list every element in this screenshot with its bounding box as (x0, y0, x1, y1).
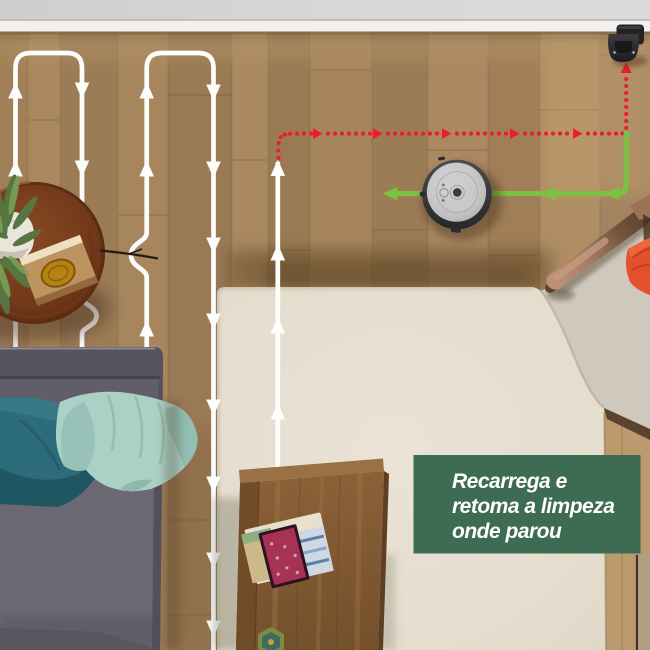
svg-text:Recarrega e: Recarrega e (452, 470, 568, 493)
svg-text:onde parou: onde parou (452, 520, 562, 543)
svg-text:retoma a limpeza: retoma a limpeza (452, 495, 615, 518)
